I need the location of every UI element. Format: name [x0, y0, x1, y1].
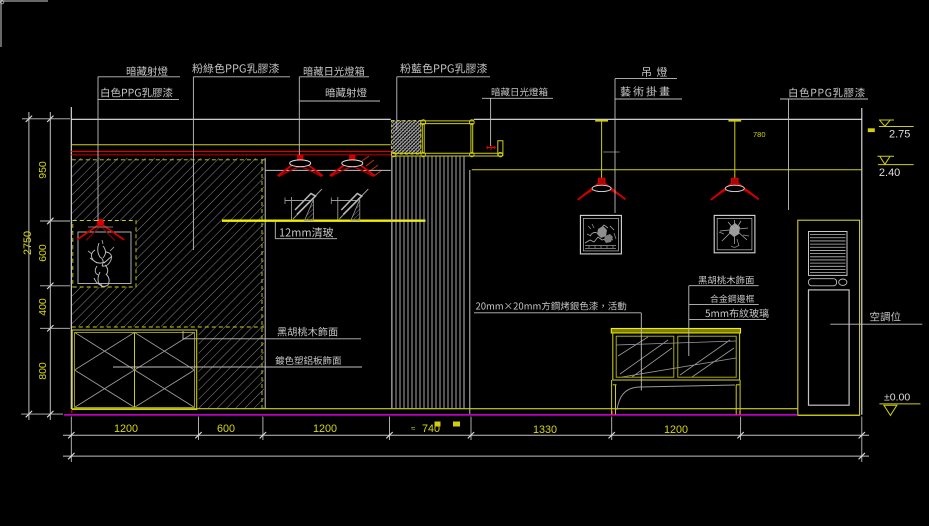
svg-text:600: 600 [37, 244, 49, 262]
svg-text:1200: 1200 [313, 423, 337, 435]
svg-text:780: 780 [753, 130, 766, 139]
svg-text:600: 600 [217, 423, 235, 435]
svg-text:±0.00: ±0.00 [884, 392, 910, 404]
svg-text:1200: 1200 [664, 424, 688, 436]
svg-text:800: 800 [37, 362, 49, 380]
svg-text:1200: 1200 [114, 423, 138, 435]
svg-text:400: 400 [37, 298, 49, 316]
svg-text:2.40: 2.40 [879, 167, 900, 179]
svg-text:2750: 2750 [22, 231, 34, 255]
svg-text:950: 950 [37, 161, 49, 179]
svg-text:2.75: 2.75 [889, 129, 910, 141]
svg-text:≈: ≈ [411, 424, 416, 433]
svg-text:1330: 1330 [533, 424, 557, 436]
